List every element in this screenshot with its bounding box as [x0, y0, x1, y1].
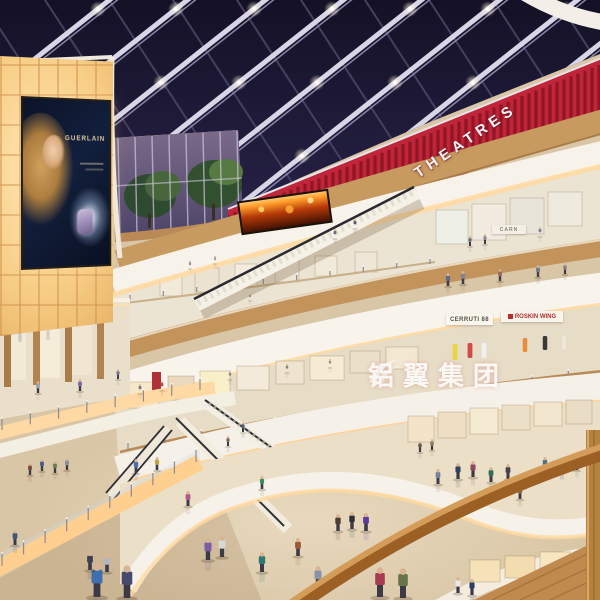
store-sign-carn: CARN — [492, 225, 526, 234]
store-logo-icon — [508, 314, 513, 319]
billboard-caption-line-2 — [85, 168, 103, 170]
billboard-caption-line — [80, 163, 103, 165]
developer-watermark: 铝翼集团 — [368, 356, 508, 393]
billboard-brand-text: GUERLAIN — [65, 135, 105, 143]
mall-atrium-rendering: GUERLAIN THEATRES 铝翼集团 CARN CERRUTI 88 R… — [0, 0, 600, 600]
perfume-bottle — [77, 209, 92, 234]
store-sign-roskin-text: ROSKIN WING — [515, 314, 556, 320]
store-sign-cerruti: CERRUTI 88 — [446, 314, 493, 325]
store-sign-roskin: ROSKIN WING — [501, 311, 563, 322]
perfume-billboard: GUERLAIN — [21, 96, 111, 270]
watermark-swoosh-logo — [368, 356, 402, 386]
billboard-model-face — [42, 135, 66, 175]
